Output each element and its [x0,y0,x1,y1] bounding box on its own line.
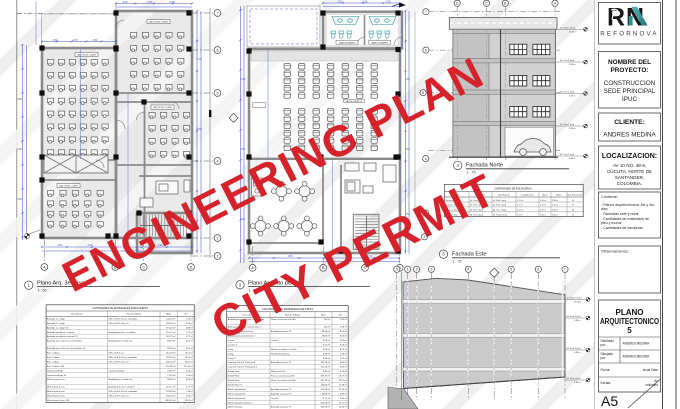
svg-text:2.50: 2.50 [17,198,22,201]
svg-text:8.04 m³: 8.04 m³ [340,361,347,364]
svg-text:07. Piso 2 (arq): 07. Piso 2 (arq) [560,123,575,126]
svg-text:09. Piso 4 (arq): 09. Piso 4 (arq) [560,59,575,62]
svg-text:1012.07 m²: 1012.07 m² [165,399,176,402]
svg-text:2.50: 2.50 [170,1,175,4]
svg-text:2.50: 2.50 [148,1,153,4]
svg-text:9.98 m: 9.98 m [574,320,581,322]
svg-text:D: D [190,265,193,269]
svg-text:Muro b para fa+ras: Muro b para fa+ras [47,378,65,381]
svg-text:10. Planta Techo: 10. Planta Techo [567,296,583,299]
svg-text:21.40 m³: 21.40 m³ [339,406,348,409]
svg-text:3.38 m: 3.38 m [569,128,576,130]
svg-text:Acabado por definir c.exterior: Acabado por definir c.exterior: 15 [47,335,78,338]
svg-text:3.30 m: 3.30 m [552,210,558,212]
svg-text:Ancho: Ancho [542,193,547,196]
svg-text:5: 5 [216,91,218,95]
svg-text:293.05 m²: 293.05 m² [166,390,176,393]
svg-text:1: 1 [216,254,218,258]
svg-text:A: A [43,265,46,269]
svg-text:8.41 m²: 8.41 m² [323,370,330,373]
svg-text:27.39 m²: 27.39 m² [167,374,176,377]
svg-text:2.50: 2.50 [58,244,63,247]
svg-text:2.17 m³: 2.17 m³ [186,386,193,389]
svg-text:116.71 m²: 116.71 m² [166,335,176,338]
svg-text:8.04 m³: 8.04 m³ [340,339,347,342]
svg-text:BANO HOMBRES: BANO HOMBRES [371,41,388,44]
svg-text:Nivel Superior: Nivel Superior [498,193,510,196]
svg-text:78.17 m³: 78.17 m³ [185,352,194,355]
svg-text:CANTIDADES DE ESCALERAS: CANTIDADES DE ESCALERAS [494,187,532,191]
svg-text:Piso cu concreto e=0.08s: Piso cu concreto e=0.08s [271,375,294,378]
svg-text:SALON EVENTOS: SALON EVENTOS [345,100,363,103]
svg-text:8.17 m²: 8.17 m² [323,343,330,346]
svg-text:Muro b para fa+ras: Muro b para fa+ras [47,390,65,393]
svg-text:6: 6 [425,48,427,52]
svg-text:7: 7 [564,268,566,272]
svg-text:Acabado para mala clar s.inter: Acabado para mala clar s.intermedias [47,340,82,343]
svg-text:213.46 m²: 213.46 m² [321,406,331,409]
svg-text:01. Piso 1 (arq): 01. Piso 1 (arq) [560,153,575,156]
svg-text:0.17 m: 0.17 m [517,200,523,202]
svg-text:Acabado para piso T3: Acabado para piso T3 [271,392,292,395]
svg-text:Issue Date: Issue Date [643,368,658,372]
svg-text:7.36 m³: 7.36 m³ [186,390,193,393]
svg-text:Acabado 1 c. beige: Acabado 1 c. beige [47,317,66,320]
svg-text:- Cantidades de escaleras: - Cantidades de escaleras [601,226,643,230]
svg-text:Acabado para s mala clar: Acabado para s mala clar [109,378,133,381]
svg-text:187.49 m²: 187.49 m² [321,375,331,378]
svg-text:2.17 m³: 2.17 m³ [186,331,193,334]
svg-text:PROYECTO:: PROYECTO: [611,67,649,74]
svg-text:1.62 m³: 1.62 m³ [340,357,347,360]
svg-text:NOMBRE DEL: NOMBRE DEL [608,59,651,66]
svg-text:5.77 m³: 5.77 m³ [186,335,193,338]
svg-text:442.18 m²: 442.18 m² [321,401,331,404]
svg-text:08. Piso 3 (arq): 08. Piso 3 (arq) [560,91,575,94]
svg-text:2.50: 2.50 [123,1,128,4]
svg-text:1.30 m: 1.30 m [540,205,546,207]
svg-text:- Fachadas este y norte: - Fachadas este y norte [601,212,639,216]
svg-text:407.08 m²: 407.08 m² [166,365,176,368]
svg-text:8.29 m³: 8.29 m³ [340,370,347,373]
svg-text:20: 20 [572,205,574,207]
svg-text:Cocky: Cocky [228,353,235,355]
svg-text:127.43 m³: 127.43 m³ [184,365,194,368]
svg-text:2.50: 2.50 [288,255,293,258]
svg-text:71.38 m³: 71.38 m³ [339,383,348,386]
svg-text:5.08 m³: 5.08 m³ [340,326,347,329]
svg-text:2.88 m²: 2.88 m² [323,348,330,351]
svg-text:4: 4 [425,157,427,161]
svg-text:8.04 m³: 8.04 m³ [340,392,347,395]
svg-text:Morte b (ps)alcohol: Morte b (ps)alcohol [228,392,246,395]
svg-text:AV 10 NO. 48-5,: AV 10 NO. 48-5, [613,163,646,168]
svg-text:2.86 m³: 2.86 m³ [340,318,347,321]
svg-text:6: 6 [537,268,539,272]
svg-text:Morte b (ps)alcohol: Morte b (ps)alcohol [228,397,246,400]
svg-text:1: 1 [407,268,409,272]
svg-text:A5: A5 [601,393,618,409]
svg-text:piso y muros: piso y muros [601,221,622,225]
svg-text:76.02 m³: 76.02 m³ [185,399,194,402]
svg-text:971.26 m²: 971.26 m² [166,326,176,329]
svg-text:8.29 m³: 8.29 m³ [340,348,347,351]
svg-text:20: 20 [572,200,574,202]
svg-text:2.50: 2.50 [405,148,410,151]
svg-text:2.50: 2.50 [240,148,245,151]
svg-text:Envi. Cabezo: Envi. Cabezo [47,357,60,359]
svg-text:04. Piso 4 (est): 04. Piso 4 (est) [567,315,581,318]
svg-text:4: 4 [467,268,469,272]
svg-text:6.68 m: 6.68 m [574,352,581,354]
svg-text:ANDRES MEDINA: ANDRES MEDINA [603,132,656,139]
svg-text:28.08 m²: 28.08 m² [322,335,331,338]
svg-text:Cocinfa: Cocinfa [271,398,279,400]
svg-text:116.71 m²: 116.71 m² [166,331,176,334]
svg-text:Acabado 1 c. beige: 50: Acabado 1 c. beige: 50 [47,326,69,329]
svg-text:Observaciones:: Observaciones: [601,249,629,254]
svg-text:2.50: 2.50 [240,78,245,81]
svg-text:02. Piso 2 (est): 02. Piso 2 (est) [567,377,581,380]
svg-text:8.04 m³: 8.04 m³ [340,330,347,333]
svg-text:R: R [607,4,625,32]
svg-text:DM c+S /E b. b3 y cct: DM c+S /E b. b3 y cct [109,360,129,363]
svg-text:8.03 m³: 8.03 m³ [186,340,193,343]
svg-text:Acabado para b+cs c.bartier: Acabado para b+cs c.bartier [109,386,135,389]
svg-text:2.50: 2.50 [197,128,202,131]
svg-text:8.04 m³: 8.04 m³ [340,397,347,400]
svg-text:Fachada Este: Fachada Este [452,252,487,258]
svg-text:Envi. Cabezo: 180: Envi. Cabezo: 180 [47,366,65,368]
svg-text:Descripcion: Descripcion [71,313,83,316]
svg-text:1.30 m: 1.30 m [540,215,546,217]
svg-text:DM c+S /E b. b3 cor. acabados: DM c+S /E b. b3 cor. acabados [109,356,138,359]
svg-text:SALON DE CLASE: SALON DE CLASE [77,54,96,57]
svg-text:Num de Escalones: Num de Escalones [567,194,583,196]
svg-text:6: 6 [216,48,218,52]
svg-text:DM c+S /E b. cct: DM c+S /E b. cct [109,352,125,355]
svg-text:21.40 m³: 21.40 m³ [339,388,348,391]
svg-text:7: 7 [216,11,218,15]
svg-text:COLOMBIA.: COLOMBIA. [617,181,643,186]
svg-text:Contiene:: Contiene: [601,194,618,199]
svg-text:Morte b (ps)alcohol: Morte b (ps)alcohol [228,388,246,391]
svg-text:8.17 m²: 8.17 m² [323,397,330,400]
svg-text:SANTANDER,: SANTANDER, [615,175,644,180]
svg-text:Concrete. Tah b e. Patio (pisp: Concrete. Tah b e. Patio (pisp: 1 [228,366,258,369]
svg-text:Exterid Floor: Exterid Floor [228,370,240,373]
svg-text:Readerstavamkonia: Readerstavamkonia [271,352,290,355]
svg-text:2: 2 [416,268,418,272]
svg-text:SALON DE CLASE: SALON DE CLASE [59,185,78,188]
svg-text:por:: por: [601,356,607,360]
svg-text:Acabado para b+cs c.exterior: Acabado para b+cs c.exterior [109,331,136,334]
svg-text:0.17 m: 0.17 m [517,210,523,212]
svg-text:ANDRES MEDINA: ANDRES MEDINA [623,342,650,346]
svg-text:116.71 m²: 116.71 m² [166,386,176,389]
svg-text:3.30 m: 3.30 m [552,200,558,202]
svg-text:43.27 m³: 43.27 m³ [339,379,348,382]
svg-text:2.50: 2.50 [93,39,98,42]
svg-text:215.78 m²: 215.78 m² [166,352,176,355]
svg-text:IPUC: IPUC [622,96,637,103]
svg-text:24.61 m³: 24.61 m³ [185,360,194,363]
svg-text:- Planos arquitectonicos 3er y: - Planos arquitectonicos 3er y 4to [601,203,654,207]
svg-text:1.09 m³: 1.09 m³ [186,374,193,377]
svg-text:Escala:: Escala: [601,381,612,385]
svg-text:2.84 m³: 2.84 m³ [186,322,193,325]
svg-text:SALON DE CLASE: SALON DE CLASE [153,106,172,109]
svg-text:Area: Area [166,313,171,316]
svg-text:456.05 m²: 456.05 m² [166,360,176,363]
svg-text:Acabado para s mala clar: Acabado para s mala clar [109,340,133,343]
svg-text:10. Planta Techo: 10. Planta Techo [560,26,576,29]
svg-text:Morte b (ps)alcohol (piso: 7: Morte b (ps)alcohol (piso: 7 [228,401,254,404]
svg-text:3.30 m: 3.30 m [552,215,558,217]
svg-text:CONSTRUCCION: CONSTRUCCION [604,80,656,87]
svg-text:Envi. Cabezo: Envi. Cabezo [47,353,60,355]
svg-text:5: 5 [627,326,632,335]
svg-text:Comercias fibrial: Comercias fibrial [109,369,125,372]
svg-text:Exterid Floor: 8: Exterid Floor: 8 [228,383,243,386]
svg-text:20: 20 [572,210,574,212]
svg-text:DM c+S /E b. b3 cor. acabados: DM c+S /E b. b3 cor. acabados [109,390,138,393]
svg-text:Fecha:: Fecha: [601,368,611,372]
svg-text:Mocha cu mada cu e=0.40s: Mocha cu mada cu e=0.40s [271,349,297,351]
svg-text:85.85 m²: 85.85 m² [167,347,176,350]
svg-text:DM c+S /E b. b1 cor. acabados: DM c+S /E b. b1 cor. acabados [109,317,138,320]
svg-text:Acabado para mala clar s.inter: Acabado para mala clar s.intermedias: 16 [47,347,86,350]
svg-text:10. Planta Techo: 10. Planta Techo [493,214,507,217]
svg-text:931.33 m²: 931.33 m² [321,379,331,382]
svg-text:85.85 m²: 85.85 m² [167,340,176,343]
svg-text:SALON DE CLASE: SALON DE CLASE [149,21,168,24]
svg-text:Acabado para piso T1: Acabado para piso T1 [271,361,292,364]
svg-text:7.23 m³: 7.23 m³ [186,317,193,320]
svg-text:140.10 m²: 140.10 m² [166,317,176,320]
svg-text:PLANO: PLANO [616,308,644,317]
svg-text:590.16 m²: 590.16 m² [166,395,176,398]
svg-text:80.85 m²: 80.85 m² [167,378,176,381]
svg-text:CLIENTE:: CLIENTE: [614,119,644,126]
svg-text:9.98 m: 9.98 m [569,64,576,66]
svg-text:Muro b para fa+ras: Muro b para fa+ras [47,386,65,389]
svg-text:3: 3 [430,268,432,272]
svg-text:2.50: 2.50 [53,39,58,42]
svg-text:REFORNOVA: REFORNOVA [600,31,659,38]
svg-text:2.50: 2.50 [17,148,22,151]
svg-text:0.08 m: 0.08 m [569,158,576,160]
svg-text:8.04 m³: 8.04 m³ [340,366,347,369]
svg-text:27.39 m²: 27.39 m² [167,369,176,372]
svg-text:8.04 m³: 8.04 m³ [340,335,347,338]
svg-text:Acabado para piso T3: Acabado para piso T3 [271,330,292,333]
svg-text:110.63 m²: 110.63 m² [321,383,331,386]
svg-text:Tipo de Tabique: Tipo de Tabique [126,314,142,316]
svg-text:Cocinfa: Cocinfa [271,340,279,342]
svg-text:ANDRES MEDINA: ANDRES MEDINA [623,355,650,359]
svg-text:0.17 m: 0.17 m [517,215,523,217]
svg-text:2.50: 2.50 [197,58,202,61]
svg-text:2: 2 [216,236,218,240]
svg-text:piso: piso [601,207,608,211]
svg-text:1 : 50: 1 : 50 [38,289,47,293]
svg-text:8.03 m³: 8.03 m³ [186,378,193,381]
svg-text:Cantidad hucila: Cantidad hucila [520,193,534,196]
svg-text:ARQUITECTONICO: ARQUITECTONICO [600,317,659,326]
svg-text:Mesal Tramway: Mesal Tramway [228,406,244,409]
svg-text:4.02 m³: 4.02 m³ [186,347,193,350]
svg-text:CANTIDADES DE MATERIALES PARA: CANTIDADES DE MATERIALES PARA MUROS [92,306,148,310]
svg-text:1.76 m³: 1.76 m³ [340,352,347,355]
svg-text:DM c+S /E b. b3 y cct: DM c+S /E b. b3 y cct [109,395,129,398]
svg-text:Acabado 1 c. beige: Acabado 1 c. beige [47,322,66,325]
svg-text:1.30 m: 1.30 m [540,210,546,212]
svg-text:132 m²: 132 m² [324,326,331,329]
svg-text:28.08 m²: 28.08 m² [322,330,331,333]
svg-text:Acabado por definir c.exterior: Acabado por definir c.exterior [47,331,74,334]
svg-text:13.28 m: 13.28 m [569,32,577,34]
svg-text:Muro b para fa+ras: 156: Muro b para fa+ras: 156 [47,399,70,402]
svg-text:0.38 m³: 0.38 m³ [186,326,193,329]
svg-text:5: 5 [510,268,512,272]
svg-text:Muro b para fa+ras: Muro b para fa+ras [47,395,65,398]
svg-text:199.74 m²: 199.74 m² [321,366,331,369]
svg-text:Acabado para piso T3: Acabado para piso T3 [271,388,292,391]
svg-text:590.16 m²: 590.16 m² [166,322,176,325]
svg-text:Cocky: 3: Cocky: 3 [228,358,237,360]
svg-text:13.28 m: 13.28 m [574,302,582,304]
svg-text:6.68 m: 6.68 m [569,96,576,98]
svg-text:2.50: 2.50 [73,39,78,42]
svg-text:Placa cu concreto e=0.08s: Placa cu concreto e=0.08s [271,379,296,382]
svg-text:132 m²: 132 m² [324,318,331,321]
svg-text:Acabado para piso T3: Acabado para piso T3 [271,406,292,409]
svg-text:2.84 m³: 2.84 m³ [186,395,193,398]
svg-text:DM c+S /E b. b3 y cct: DM c+S /E b. b3 y cct [109,322,129,325]
svg-text:0.17 m: 0.17 m [517,205,523,207]
svg-text:8.38 m²: 8.38 m² [323,357,330,360]
svg-text:1.30 m: 1.30 m [540,200,546,202]
svg-text:Mocha e=0.40s: Mocha e=0.40s [271,371,285,373]
svg-text:47.37 m³: 47.37 m³ [339,401,348,404]
svg-text:Vol: Vol [339,314,343,316]
svg-text:Comercias fibrigt: 43: Comercias fibrigt: 43 [47,374,67,377]
svg-text:293.05 m²: 293.05 m² [166,356,176,359]
svg-text:Concrete. Tah b e. Patio (pisp: Concrete. Tah b e. Patio (pisp [228,361,256,364]
svg-text:4: 4 [216,159,218,163]
svg-text:12.04 m³: 12.04 m³ [185,356,194,359]
svg-text:18.77 m³: 18.77 m³ [339,375,348,378]
svg-text:213.46 m²: 213.46 m² [321,388,331,391]
svg-text:3.30 m: 3.30 m [552,205,558,207]
svg-text:03. Piso 3 (est): 03. Piso 3 (est) [567,347,581,350]
svg-text:8.08 m²: 8.08 m² [323,339,330,342]
svg-text:BANO MUJERES: BANO MUJERES [339,41,355,44]
svg-text:Exterid Floor: Exterid Floor [228,379,240,382]
svg-text:1 : 75: 1 : 75 [453,260,462,264]
svg-text:2.50: 2.50 [17,98,22,101]
svg-text:7: 7 [425,10,427,14]
svg-text:1.06 m³: 1.06 m³ [186,369,193,372]
svg-text:Exterid Floor: Exterid Floor [228,375,240,378]
svg-text:5.49 m²: 5.49 m² [323,352,330,355]
svg-text:199.74 m²: 199.74 m² [321,361,331,364]
svg-text:3.38 m: 3.38 m [574,382,581,384]
svg-text:por:: por: [601,343,607,347]
svg-text:SEDE PRINCIPAL: SEDE PRINCIPAL [604,88,656,95]
svg-text:28.08 m²: 28.08 m² [322,392,331,395]
svg-text:LOCALIZACION:: LOCALIZACION: [602,153,657,160]
svg-text:Comercias fibrigt: Comercias fibrigt [47,369,63,372]
svg-text:CÚCUTA, NORTE DE: CÚCUTA, NORTE DE [607,168,652,174]
svg-text:Vol: Vol [184,314,188,316]
svg-text:Area: Area [321,313,326,316]
svg-text:20: 20 [572,215,574,217]
svg-text:Envi. Cabezo: Envi. Cabezo [47,361,60,363]
svg-text:8.29 m³: 8.29 m³ [340,343,347,346]
svg-text:Cocky: Cocky [228,349,235,351]
